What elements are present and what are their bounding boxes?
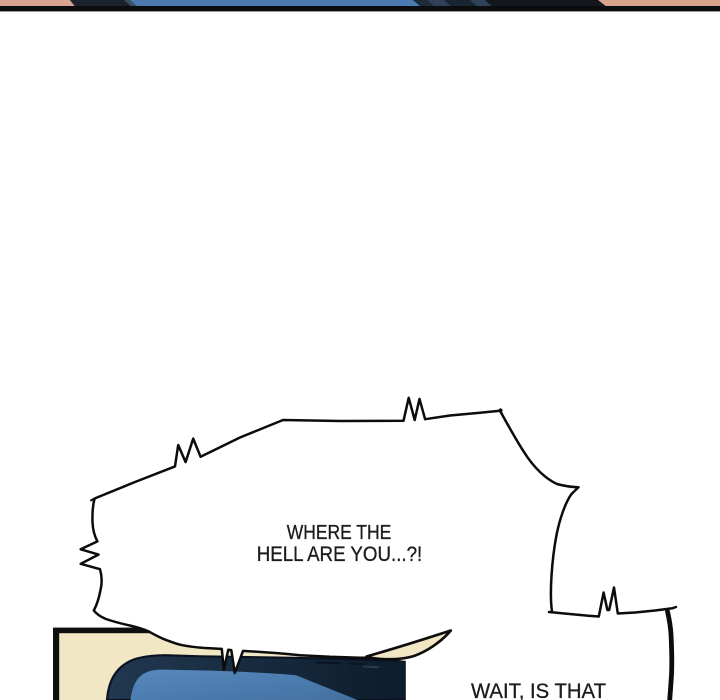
svg-text:WHERE THE: WHERE THE: [287, 521, 392, 544]
svg-text:WAIT, IS THAT: WAIT, IS THAT: [471, 679, 606, 700]
svg-text:HELL ARE YOU...?!: HELL ARE YOU...?!: [257, 543, 423, 566]
